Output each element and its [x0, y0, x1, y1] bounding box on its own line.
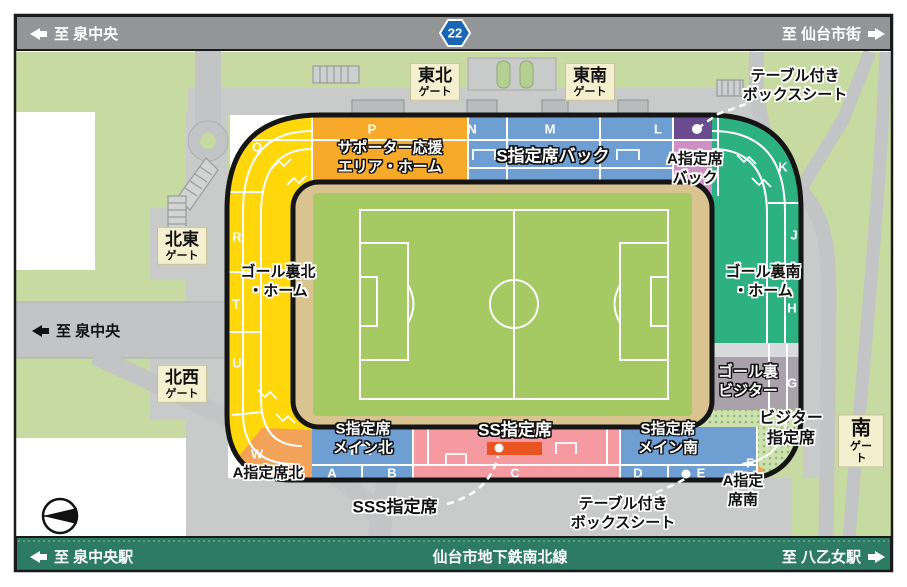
- block-g: G: [787, 376, 797, 391]
- label-supporter-area: サポーター応援 エリア・ホーム: [337, 139, 442, 177]
- gate-minami: 南 ゲート: [838, 414, 884, 467]
- top-road-right-label: 至 仙台市街: [782, 23, 885, 44]
- label-s-back: S指定席バック: [496, 145, 609, 166]
- label-sss: SSS指定席: [352, 496, 437, 517]
- gate-tohoku: 東北 ゲート: [410, 63, 460, 101]
- subway-left-text: 至 泉中央駅: [54, 546, 133, 567]
- block-m: M: [545, 122, 556, 137]
- label-a-south: A指定 席南: [723, 472, 764, 510]
- block-f: F: [746, 456, 754, 471]
- compass-icon: [43, 499, 77, 533]
- west-road-label: 至 泉中央: [32, 320, 120, 341]
- label-s-main-north: S指定席 メイン北: [333, 420, 393, 458]
- block-a: A: [327, 466, 336, 481]
- subway-right-text: 至 八乙女駅: [782, 546, 861, 567]
- gate-tonan: 東南 ゲート: [565, 63, 615, 101]
- west-road-text: 至 泉中央: [56, 320, 120, 341]
- left-arrow-icon: [32, 325, 49, 337]
- right-arrow-icon: [868, 551, 885, 563]
- subway-center-label: 仙台市地下鉄南北線: [432, 546, 567, 567]
- block-k: K: [778, 160, 787, 175]
- block-c: C: [510, 466, 519, 481]
- label-goal-visitor: ゴール裏 ビジター: [718, 363, 778, 401]
- label-a-back: A指定席 バック: [667, 150, 723, 188]
- subway-right-label: 至 八乙女駅: [782, 546, 885, 567]
- block-t: T: [232, 297, 240, 312]
- block-n: N: [467, 122, 476, 137]
- label-visitor-reserved: ビジター 指定席: [759, 409, 823, 449]
- stadium-map-canvas: 至 泉中央 至 仙台市街 22 至 泉中央 至 泉中央駅 仙台市地下鉄南北線 至…: [0, 0, 907, 587]
- block-e: E: [697, 466, 706, 481]
- block-q: Q: [252, 140, 262, 155]
- block-r: R: [232, 230, 241, 245]
- label-ss: SS指定席: [478, 419, 552, 440]
- label-s-main-south: S指定席 メイン南: [638, 420, 698, 458]
- block-l: L: [654, 122, 662, 137]
- top-road-left-label: 至 泉中央: [30, 23, 118, 44]
- roundabout: [188, 121, 228, 161]
- block-p: P: [368, 122, 377, 137]
- left-arrow-icon: [30, 28, 47, 40]
- block-h: H: [787, 301, 796, 316]
- label-a-north: A指定席北: [233, 465, 304, 484]
- top-road-right-text: 至 仙台市街: [782, 23, 861, 44]
- block-u: U: [232, 356, 241, 371]
- label-goal-north: ゴール裏北 ・ホーム: [240, 263, 315, 301]
- subway-left-label: 至 泉中央駅: [30, 546, 133, 567]
- block-d: D: [633, 466, 642, 481]
- block-w: W: [251, 447, 263, 462]
- gate-hokuto: 北東 ゲート: [157, 227, 207, 265]
- block-b: B: [387, 466, 396, 481]
- right-arrow-icon: [868, 28, 885, 40]
- gate-hokusei: 北西 ゲート: [157, 365, 207, 403]
- left-arrow-icon: [30, 551, 47, 563]
- label-table-box-top: テーブル付き ボックスシート: [743, 67, 848, 105]
- soccer-field: [293, 182, 712, 427]
- label-table-box-bottom: テーブル付き ボックスシート: [571, 495, 676, 533]
- top-road-left-text: 至 泉中央: [54, 23, 118, 44]
- route-number: 22: [448, 26, 462, 41]
- section-buffer-gray: [710, 343, 803, 357]
- subway-line-name: 仙台市地下鉄南北線: [432, 546, 567, 567]
- block-j: J: [790, 228, 797, 243]
- label-goal-south: ゴール裏南 ・ホーム: [725, 263, 800, 301]
